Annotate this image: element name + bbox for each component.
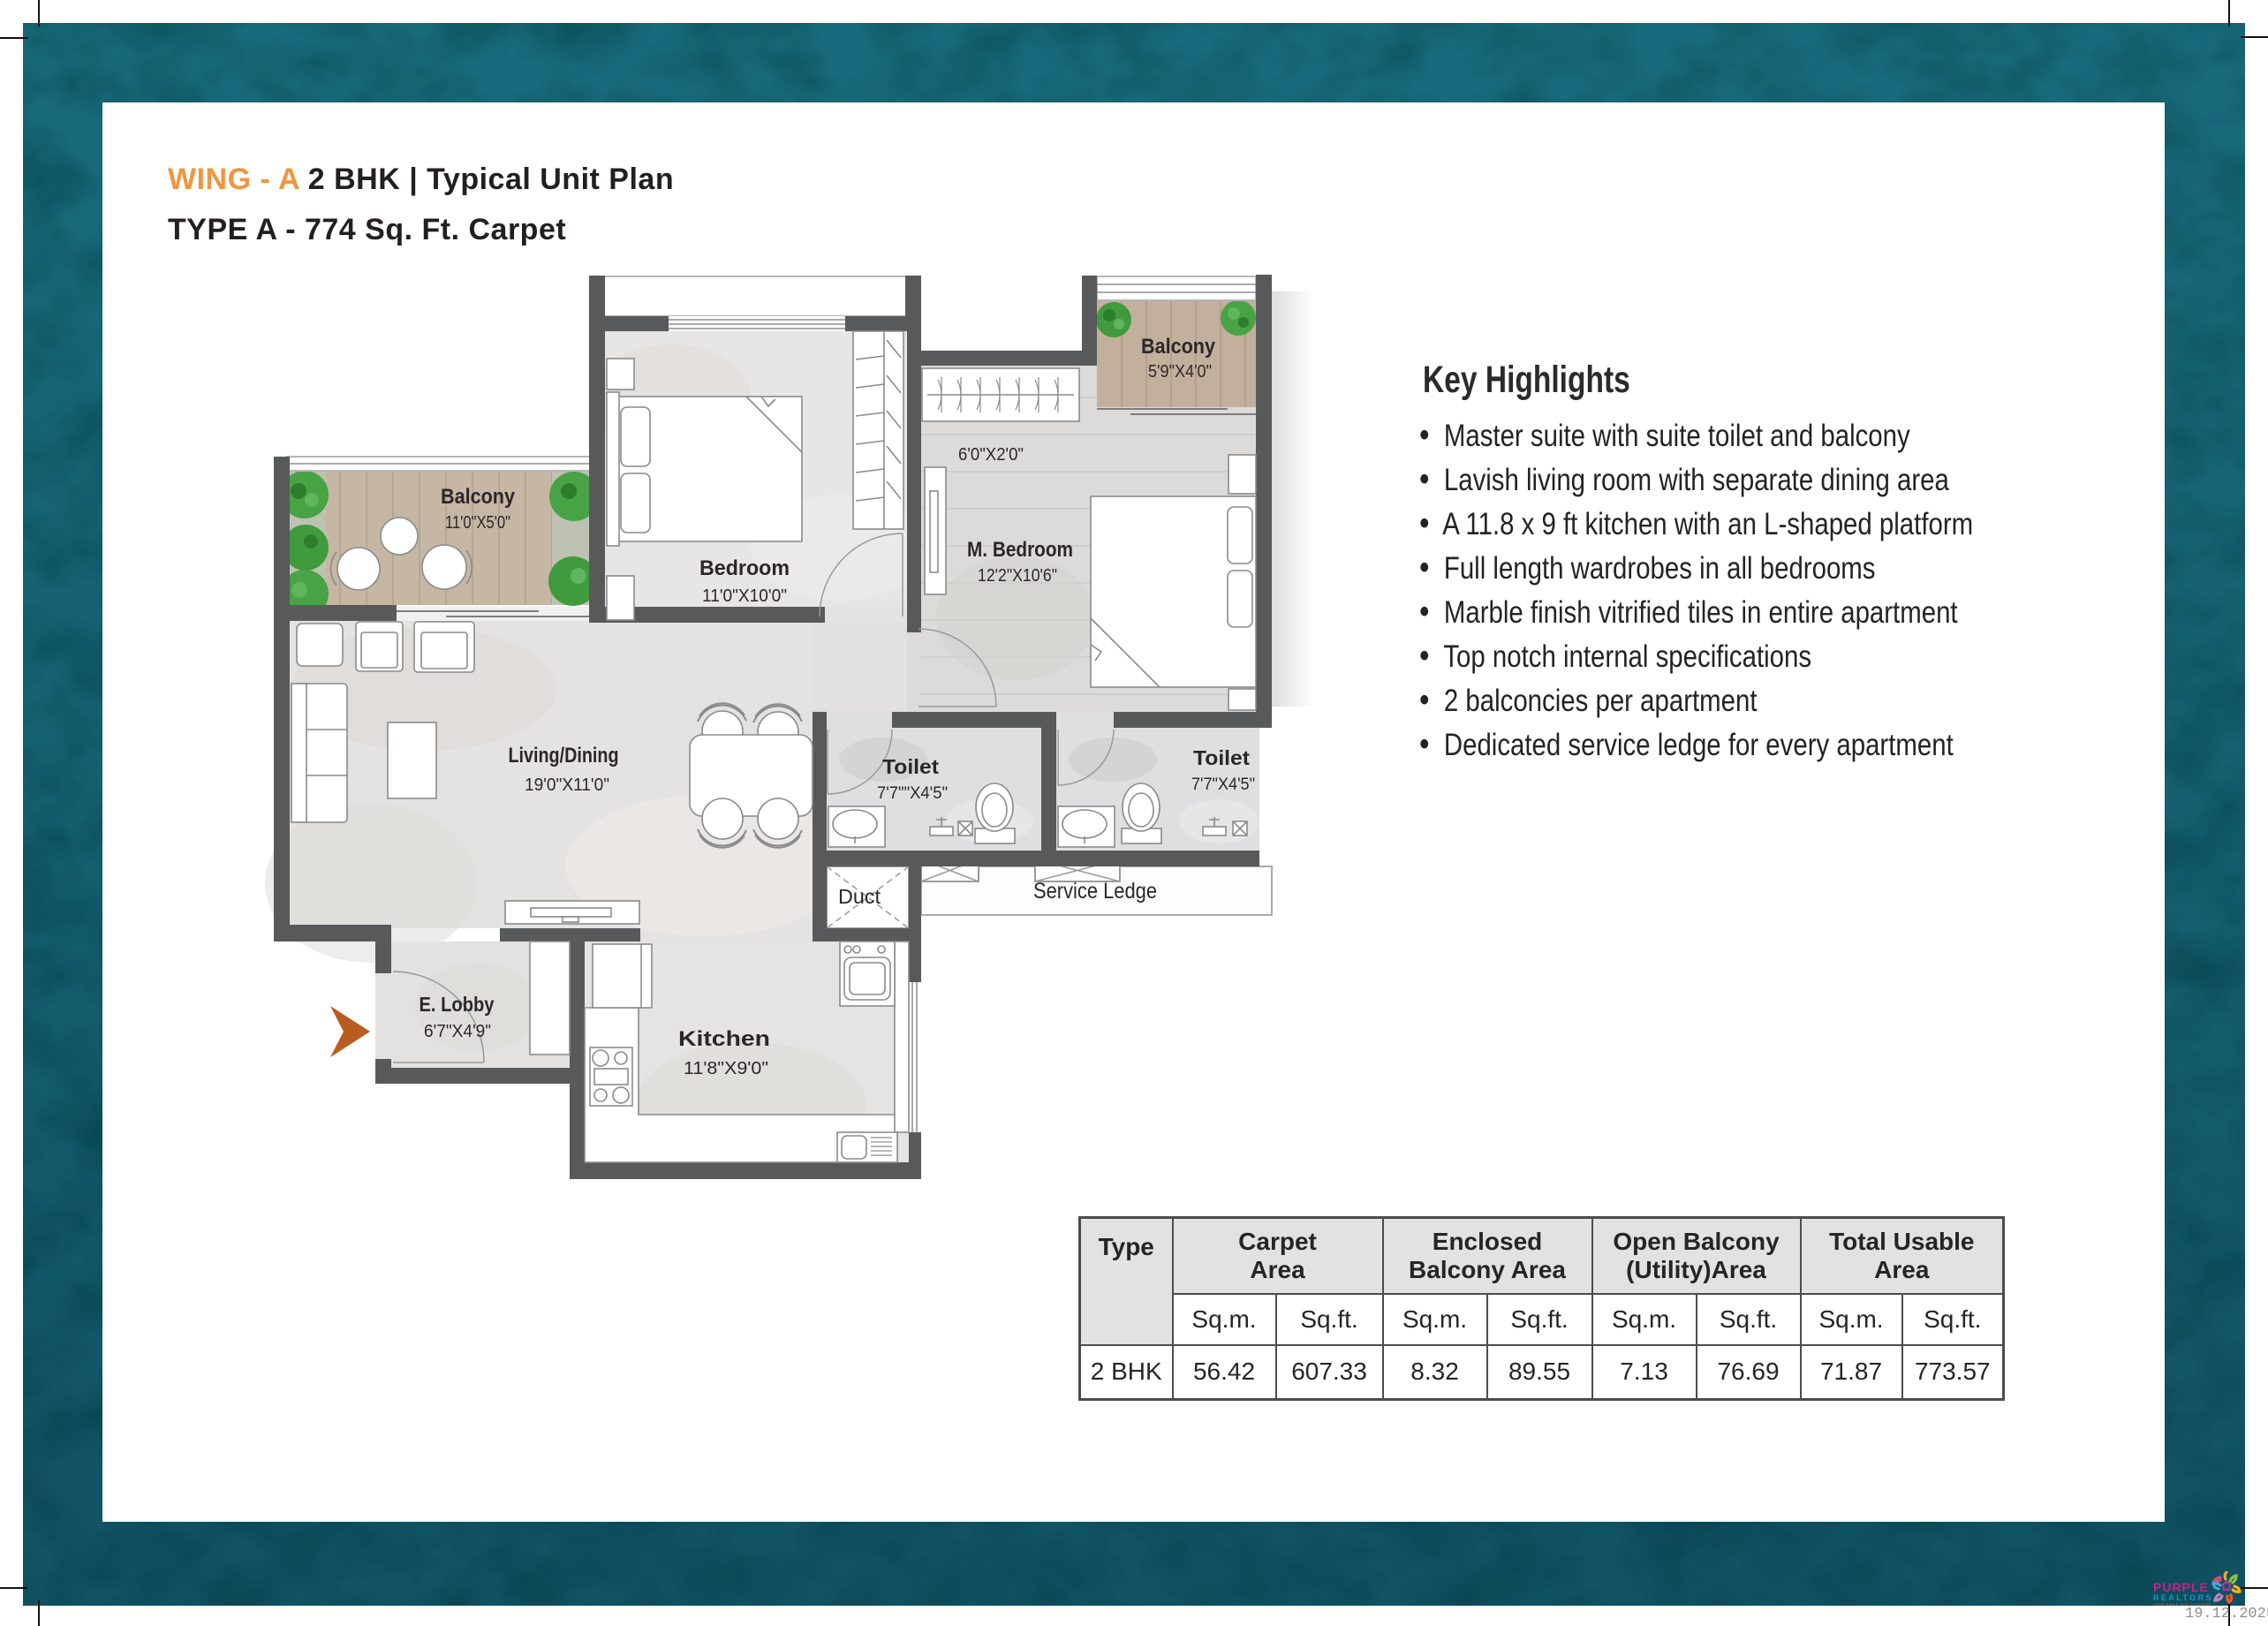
svg-text:Toilet: Toilet bbox=[882, 755, 939, 778]
svg-text:6'7"X4'9": 6'7"X4'9" bbox=[424, 1022, 491, 1041]
svg-text:Balcony: Balcony bbox=[1141, 335, 1216, 359]
svg-text:11'0"X5'0": 11'0"X5'0" bbox=[445, 513, 510, 533]
svg-text:12'2"X10'6": 12'2"X10'6" bbox=[978, 566, 1057, 586]
svg-text:Toilet: Toilet bbox=[1193, 746, 1250, 769]
svg-text:Living/Dining: Living/Dining bbox=[509, 744, 619, 768]
svg-text:Balcony: Balcony bbox=[441, 485, 516, 509]
svg-text:11'8"X9'0": 11'8"X9'0" bbox=[684, 1059, 768, 1078]
svg-text:Duct: Duct bbox=[838, 885, 881, 908]
svg-text:Kitchen: Kitchen bbox=[678, 1027, 770, 1051]
svg-text:5'9"X4'0": 5'9"X4'0" bbox=[1148, 362, 1212, 382]
svg-text:Service Ledge: Service Ledge bbox=[1033, 879, 1157, 904]
svg-text:Bedroom: Bedroom bbox=[699, 556, 790, 580]
svg-text:19'0"X11'0": 19'0"X11'0" bbox=[525, 775, 609, 795]
svg-text:7'7""X4'5": 7'7""X4'5" bbox=[877, 784, 948, 803]
svg-text:E. Lobby: E. Lobby bbox=[420, 993, 495, 1016]
svg-text:6'0"X2'0": 6'0"X2'0" bbox=[958, 445, 1024, 465]
svg-text:M. Bedroom: M. Bedroom bbox=[967, 538, 1073, 562]
svg-text:11'0"X10'0": 11'0"X10'0" bbox=[702, 586, 787, 606]
svg-text:7'7"X4'5": 7'7"X4'5" bbox=[1191, 775, 1255, 794]
